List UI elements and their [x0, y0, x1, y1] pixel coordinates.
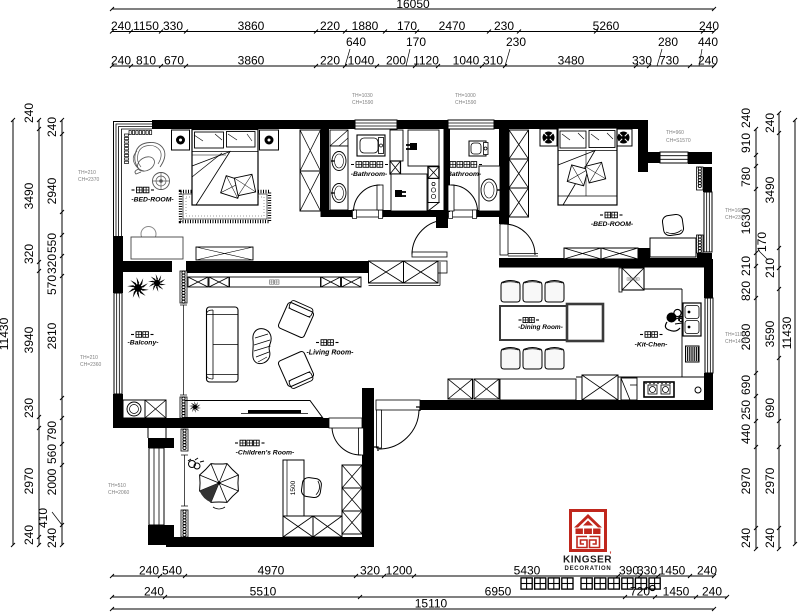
svg-text:240: 240	[111, 54, 131, 68]
svg-text:3490: 3490	[763, 176, 777, 203]
svg-text:TH=960: TH=960	[666, 130, 684, 136]
svg-text:-BED-ROOM-: -BED-ROOM-	[591, 221, 634, 228]
svg-text:2970: 2970	[763, 467, 777, 494]
svg-text:5510: 5510	[250, 585, 277, 599]
svg-text:-Bathroom-: -Bathroom-	[445, 171, 482, 178]
svg-text:1450: 1450	[663, 585, 690, 599]
svg-text:1450: 1450	[659, 564, 686, 578]
svg-text:570: 570	[45, 275, 59, 295]
svg-text:240: 240	[139, 564, 159, 578]
svg-text:TH=160: TH=160	[725, 208, 743, 214]
svg-text:11430: 11430	[780, 316, 794, 349]
svg-text:TH=1000: TH=1000	[455, 93, 476, 99]
svg-text:CH=1590: CH=1590	[455, 100, 476, 106]
svg-text:15110: 15110	[415, 597, 448, 611]
svg-text:-Dining Room-: -Dining Room-	[518, 324, 563, 331]
svg-text:3490: 3490	[22, 182, 36, 209]
svg-text:3480: 3480	[558, 54, 585, 68]
svg-text:2470: 2470	[439, 19, 466, 33]
svg-text:540: 540	[162, 564, 182, 578]
svg-text:730: 730	[659, 54, 679, 68]
svg-text:2940: 2940	[45, 177, 59, 204]
svg-text:4970: 4970	[258, 564, 285, 578]
svg-text:-Kit-Chen-: -Kit-Chen-	[635, 342, 669, 349]
svg-text:CH=2360: CH=2360	[80, 362, 101, 368]
svg-text:-Living Room-: -Living Room-	[306, 350, 354, 357]
svg-text:6950: 6950	[485, 585, 512, 599]
svg-text:240: 240	[22, 103, 36, 123]
svg-text:TH=510: TH=510	[108, 483, 126, 489]
svg-text:280: 280	[658, 35, 678, 49]
svg-text:310: 310	[483, 54, 503, 68]
svg-text:3860: 3860	[238, 19, 265, 33]
svg-text:-BED-ROOM-: -BED-ROOM-	[131, 197, 174, 204]
svg-text:910: 910	[739, 133, 753, 153]
svg-text:240: 240	[111, 19, 131, 33]
svg-text:410: 410	[36, 508, 50, 528]
svg-text:2000: 2000	[45, 468, 59, 495]
svg-text:240: 240	[699, 19, 719, 33]
svg-text:3590: 3590	[763, 320, 777, 347]
svg-text:220: 220	[320, 54, 340, 68]
svg-text:780: 780	[739, 167, 753, 187]
svg-text:670: 670	[164, 54, 184, 68]
svg-text:KINGSER: KINGSER	[563, 555, 612, 566]
svg-text:3860: 3860	[238, 54, 265, 68]
svg-text:440: 440	[739, 424, 753, 444]
svg-text:230: 230	[22, 398, 36, 418]
svg-text:560: 560	[45, 444, 59, 464]
svg-text:240: 240	[702, 585, 722, 599]
svg-text:TH=1030: TH=1030	[352, 93, 373, 99]
svg-text:320: 320	[360, 564, 380, 578]
svg-text:1880: 1880	[352, 19, 379, 33]
svg-text:210: 210	[763, 258, 777, 278]
svg-text:240: 240	[739, 528, 753, 548]
svg-text:DECORATION: DECORATION	[565, 566, 612, 572]
svg-text:220: 220	[320, 19, 340, 33]
svg-text:1040: 1040	[453, 54, 480, 68]
svg-text:330: 330	[163, 19, 183, 33]
svg-text:CH=1590: CH=1590	[352, 100, 373, 106]
svg-text:5430: 5430	[514, 564, 541, 578]
svg-text:320: 320	[45, 254, 59, 274]
svg-text:11430: 11430	[0, 317, 11, 350]
svg-text:240: 240	[45, 117, 59, 137]
svg-text:2970: 2970	[22, 467, 36, 494]
svg-text:CH=2370: CH=2370	[725, 215, 746, 221]
svg-text:250: 250	[739, 400, 753, 420]
svg-text:2970: 2970	[739, 467, 753, 494]
svg-text:690: 690	[763, 398, 777, 418]
svg-text:CH=2370: CH=2370	[78, 177, 99, 183]
svg-text:240: 240	[144, 585, 164, 599]
svg-text:320: 320	[22, 244, 36, 264]
svg-text:1500: 1500	[290, 480, 297, 495]
svg-text:810: 810	[136, 54, 156, 68]
svg-text:690: 690	[739, 375, 753, 395]
svg-text:CH=2060: CH=2060	[108, 490, 129, 496]
svg-text:820: 820	[739, 281, 753, 301]
svg-text:440: 440	[698, 35, 718, 49]
svg-text:240: 240	[739, 108, 753, 128]
svg-text:200: 200	[386, 54, 406, 68]
svg-text:640: 640	[346, 35, 366, 49]
svg-text:CH=1450: CH=1450	[725, 339, 746, 345]
svg-text:3940: 3940	[22, 326, 36, 353]
svg-text:TH=1100: TH=1100	[725, 332, 746, 338]
svg-text:240: 240	[22, 525, 36, 545]
svg-text:TH=210: TH=210	[78, 170, 96, 176]
svg-text:1200: 1200	[386, 564, 413, 578]
svg-text:240: 240	[45, 528, 59, 548]
svg-text:2810: 2810	[45, 322, 59, 349]
svg-text:-Bathroom-: -Bathroom-	[351, 171, 388, 178]
svg-text:170: 170	[406, 35, 426, 49]
svg-text:-Children's Room-: -Children's Room-	[236, 450, 295, 457]
svg-text:170: 170	[397, 19, 417, 33]
svg-text:240: 240	[763, 113, 777, 133]
svg-text:550: 550	[45, 233, 59, 253]
svg-text:1150: 1150	[133, 19, 159, 33]
svg-text:-Balcony-: -Balcony-	[128, 340, 160, 347]
svg-text:170: 170	[755, 232, 769, 252]
svg-text:16050: 16050	[396, 0, 430, 11]
svg-text:230: 230	[506, 35, 526, 49]
svg-text:240: 240	[763, 528, 777, 548]
svg-text:230: 230	[494, 19, 514, 33]
svg-text:1040: 1040	[348, 54, 375, 68]
svg-text:210: 210	[739, 256, 753, 276]
svg-text:1120: 1120	[413, 54, 439, 68]
svg-text:CH=S1570: CH=S1570	[666, 138, 691, 144]
svg-text:790: 790	[45, 421, 59, 441]
svg-text:TH=210: TH=210	[80, 355, 98, 361]
svg-text:’: ’	[609, 551, 611, 560]
